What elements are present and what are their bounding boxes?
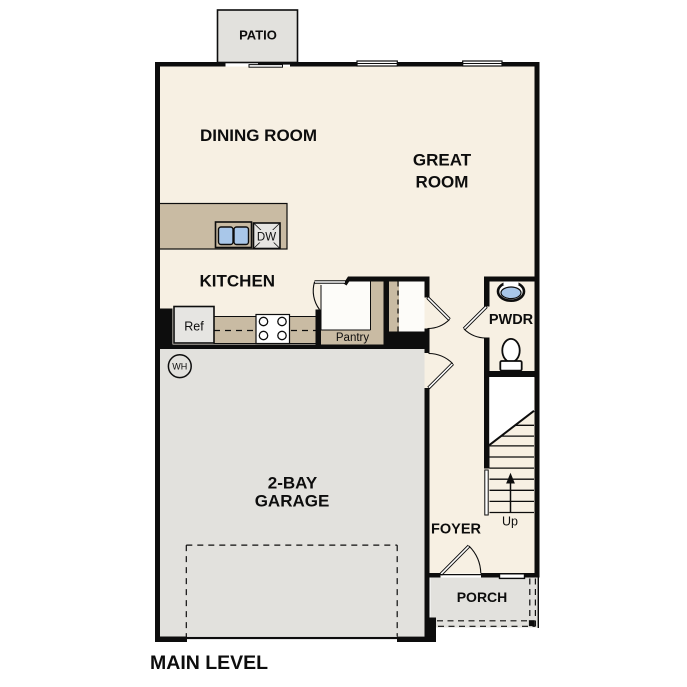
svg-text:DINING ROOM: DINING ROOM (200, 126, 317, 145)
svg-text:ROOM: ROOM (416, 172, 469, 191)
svg-text:GARAGE: GARAGE (255, 492, 330, 511)
svg-text:GREAT: GREAT (413, 151, 472, 170)
svg-text:PWDR: PWDR (489, 312, 534, 328)
svg-text:Pantry: Pantry (336, 332, 369, 344)
svg-text:KITCHEN: KITCHEN (200, 271, 276, 290)
svg-text:FOYER: FOYER (431, 522, 481, 538)
svg-text:Ref: Ref (184, 320, 204, 334)
svg-text:Up: Up (502, 514, 518, 528)
svg-text:MAIN LEVEL: MAIN LEVEL (150, 652, 268, 674)
svg-text:PORCH: PORCH (457, 589, 508, 605)
svg-text:DW: DW (257, 232, 276, 244)
svg-text:PATIO: PATIO (239, 28, 277, 43)
svg-text:2-BAY: 2-BAY (268, 474, 318, 493)
svg-text:WH: WH (172, 362, 187, 372)
